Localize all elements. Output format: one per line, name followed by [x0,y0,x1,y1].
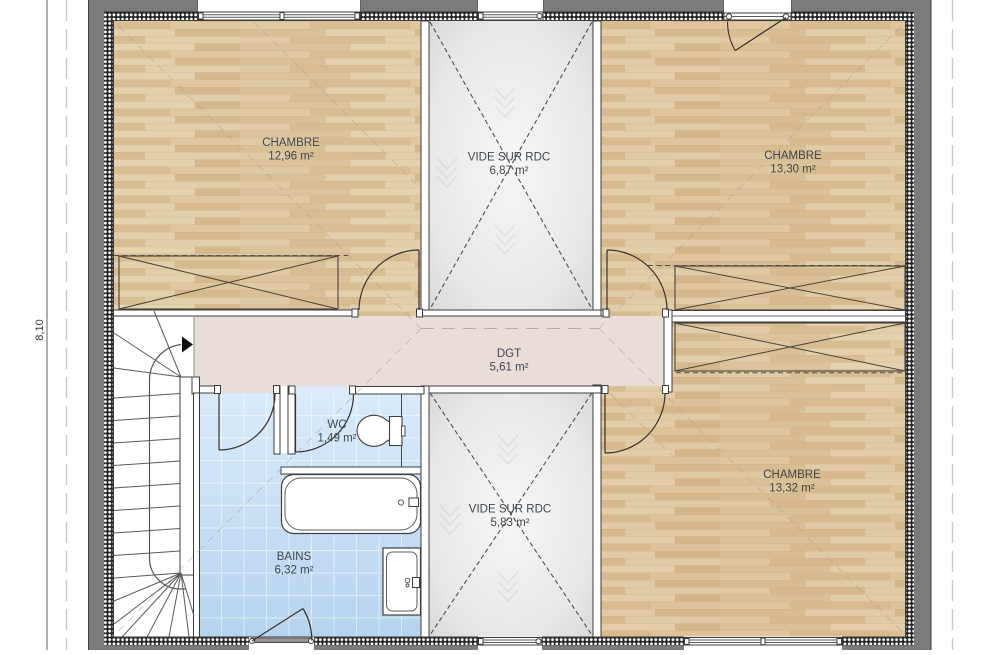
svg-text:5,61 m²: 5,61 m² [490,362,529,374]
svg-text:6,87 m²: 6,87 m² [490,165,529,177]
svg-text:WC: WC [327,419,346,431]
svg-text:DGT: DGT [497,348,521,360]
svg-text:8,10: 8,10 [34,319,46,340]
svg-text:6,32 m²: 6,32 m² [275,565,314,577]
svg-text:5,83 m²: 5,83 m² [491,517,530,529]
svg-text:12,96 m²: 12,96 m² [268,151,314,163]
svg-text:13,30 m²: 13,30 m² [770,164,816,176]
svg-text:CHAMBRE: CHAMBRE [763,469,821,481]
svg-text:BAINS: BAINS [277,551,312,563]
svg-text:1,49 m²: 1,49 m² [318,433,357,445]
svg-text:VIDE SUR RDC: VIDE SUR RDC [469,504,551,516]
svg-text:CHAMBRE: CHAMBRE [262,137,320,149]
svg-text:CHAMBRE: CHAMBRE [764,150,822,162]
svg-text:VIDE SUR RDC: VIDE SUR RDC [468,152,550,164]
svg-text:13,32 m²: 13,32 m² [769,483,815,495]
